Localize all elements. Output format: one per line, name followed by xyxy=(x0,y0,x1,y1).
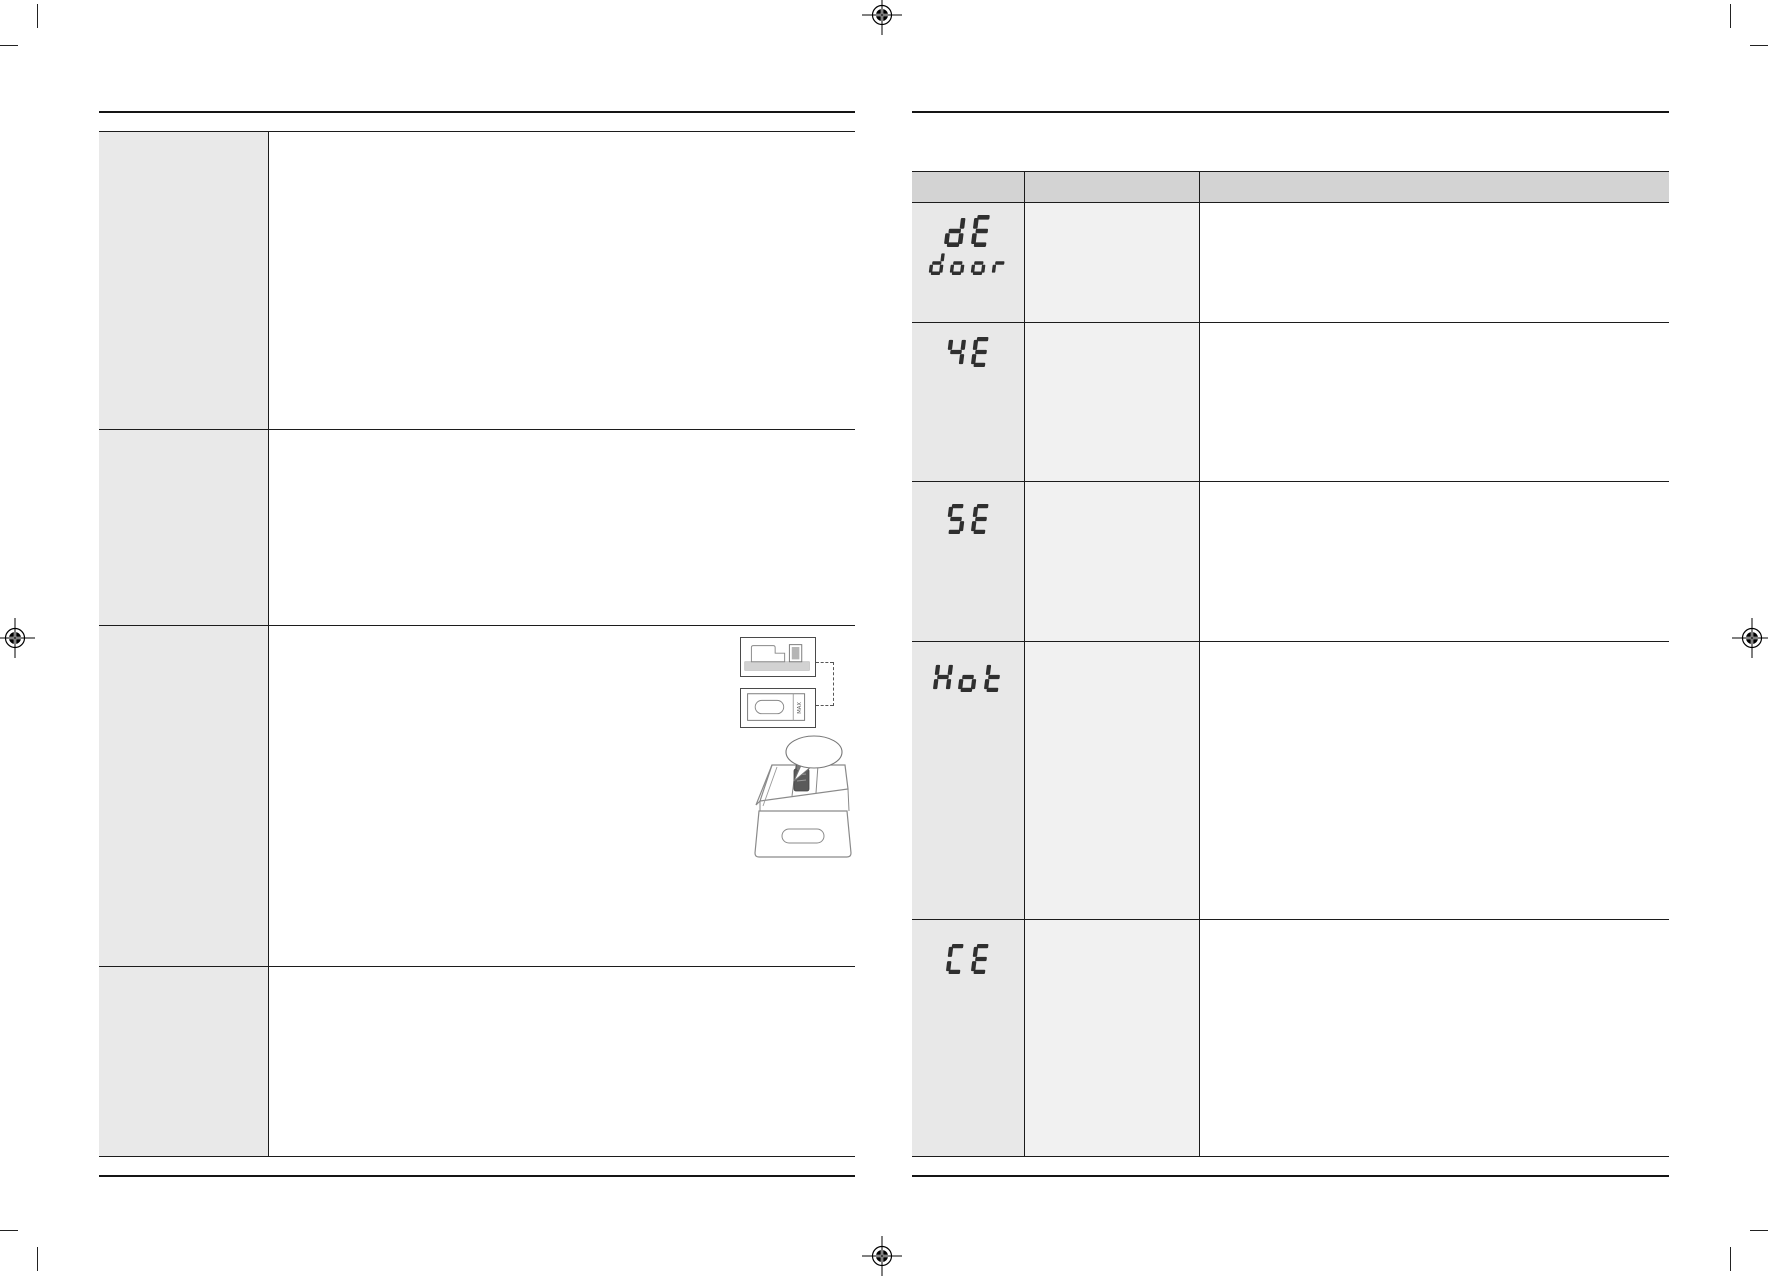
crop-tick-bottom-left-h xyxy=(0,1230,18,1231)
dashed-connector xyxy=(816,662,833,663)
crop-tick-bottom-left-v xyxy=(37,1247,38,1271)
right-page-bottom-rule xyxy=(912,1175,1669,1177)
table-row xyxy=(99,967,855,1156)
header-solution-cell xyxy=(1200,172,1669,202)
washer-side-icon xyxy=(740,637,816,677)
crop-tick-top-left-h xyxy=(0,45,18,46)
table-row xyxy=(99,430,855,626)
table-row xyxy=(912,920,1669,1156)
speech-balloon xyxy=(786,736,842,768)
left-page-top-rule xyxy=(99,111,855,113)
cause-cell xyxy=(1025,920,1200,1156)
max-label: MAX xyxy=(797,702,803,714)
cause-cell xyxy=(1025,323,1200,481)
registration-mark-right xyxy=(1732,618,1768,658)
solution-cell xyxy=(1200,203,1669,322)
crop-tick-bottom-right-h xyxy=(1750,1230,1768,1231)
registration-mark-bottom xyxy=(862,1236,902,1276)
manual-scan-page: { "document": { "kind": "washing-machine… xyxy=(0,0,1768,1275)
dashed-connector xyxy=(833,662,834,706)
open-drawer-drawing xyxy=(750,735,855,875)
left-page-bottom-rule xyxy=(99,1175,855,1177)
seven-segment-code xyxy=(912,642,1025,920)
crop-tick-top-right-v xyxy=(1730,4,1731,28)
cause-cell xyxy=(1025,203,1200,322)
right-page-top-rule xyxy=(912,111,1669,113)
seven-segment-code xyxy=(912,482,1025,641)
table-row xyxy=(912,482,1669,642)
content-cell xyxy=(269,967,855,1156)
seven-segment-code xyxy=(912,203,1025,322)
row-label-cell xyxy=(99,626,269,967)
row-label-cell xyxy=(99,967,269,1156)
table-row xyxy=(912,323,1669,482)
header-code-cell xyxy=(912,172,1025,202)
cause-cell xyxy=(1025,482,1200,641)
solution-cell xyxy=(1200,482,1669,641)
registration-mark-top xyxy=(862,0,902,35)
crop-tick-bottom-right-v xyxy=(1730,1247,1731,1271)
seven-segment-code xyxy=(912,920,1025,1156)
table-row xyxy=(99,132,855,430)
row-label-cell xyxy=(99,430,269,625)
content-cell xyxy=(269,430,855,625)
header-cause-cell xyxy=(1025,172,1200,202)
table-row xyxy=(912,203,1669,323)
solution-cell xyxy=(1200,323,1669,481)
error-code-table xyxy=(912,171,1669,1157)
content-cell xyxy=(269,132,855,429)
row-label-cell xyxy=(99,132,269,429)
solution-cell xyxy=(1200,642,1669,920)
table-row xyxy=(912,642,1669,921)
registration-mark-left xyxy=(0,618,35,658)
crop-tick-top-left-v xyxy=(37,4,38,28)
seven-segment-code xyxy=(912,323,1025,481)
crop-tick-top-right-h xyxy=(1750,45,1768,46)
drawer-front-icon: MAX xyxy=(740,688,816,728)
solution-cell xyxy=(1200,920,1669,1156)
cause-cell xyxy=(1025,642,1200,920)
table-header-row xyxy=(912,172,1669,203)
dashed-connector xyxy=(816,705,833,706)
detergent-drawer-illustration: MAX xyxy=(740,637,858,877)
